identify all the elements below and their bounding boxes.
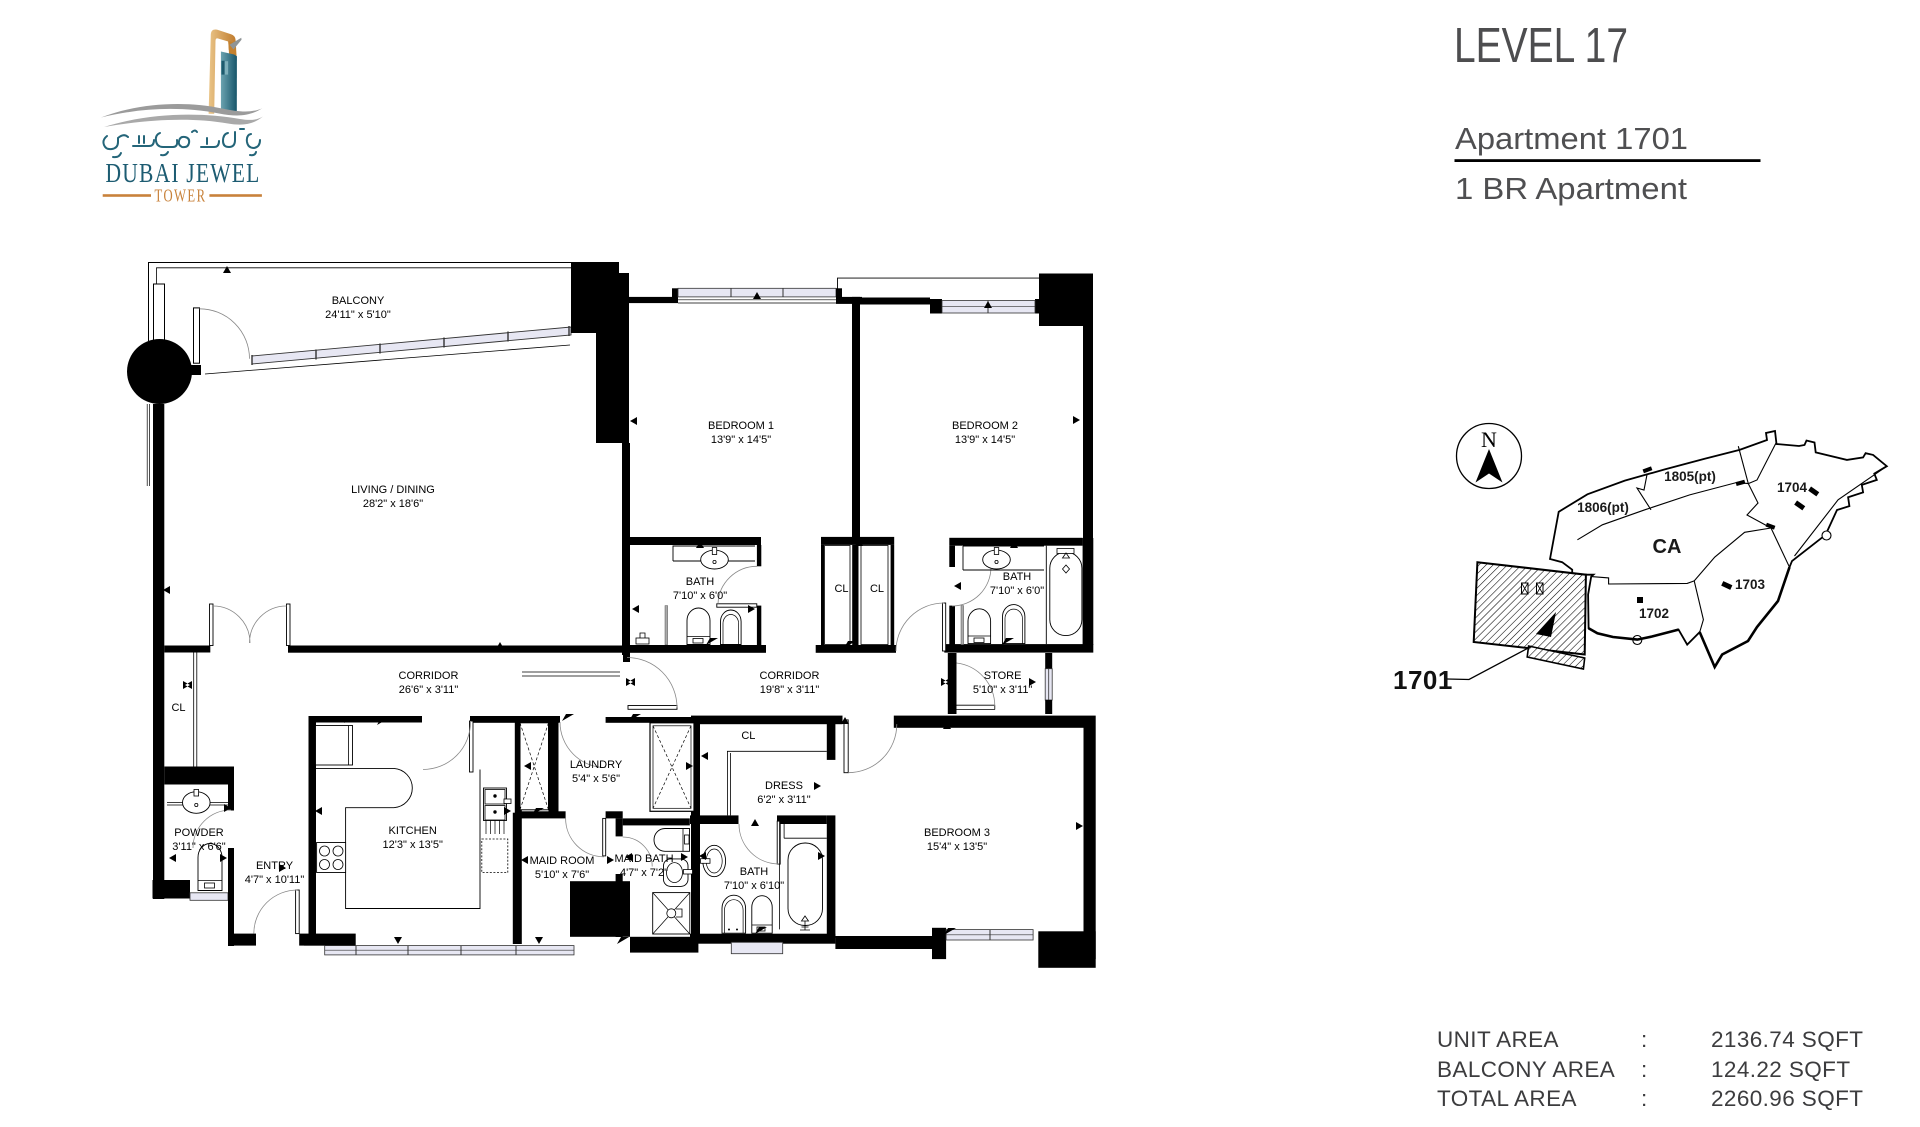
svg-text:15'4" x 13'5": 15'4" x 13'5"	[927, 841, 987, 853]
svg-text:TOTAL AREA: TOTAL AREA	[1437, 1086, 1577, 1111]
svg-text:ENTRY: ENTRY	[256, 860, 294, 872]
svg-text:DRESS: DRESS	[765, 780, 803, 792]
svg-text:UNIT AREA: UNIT AREA	[1437, 1027, 1559, 1052]
svg-text:4'7" x 7'2": 4'7" x 7'2"	[620, 867, 668, 879]
svg-text:LEVEL 17: LEVEL 17	[1454, 18, 1628, 73]
svg-text:13'9" x 14'5": 13'9" x 14'5"	[955, 434, 1015, 446]
svg-text:1704: 1704	[1777, 480, 1808, 495]
svg-text::: :	[1641, 1027, 1648, 1052]
svg-text:1805(pt): 1805(pt)	[1664, 469, 1716, 484]
svg-text:124.22 SQFT: 124.22 SQFT	[1711, 1057, 1850, 1082]
svg-text:LAUNDRY: LAUNDRY	[570, 759, 623, 771]
svg-text:7'10" x 6'0": 7'10" x 6'0"	[673, 590, 727, 602]
svg-text:DUBAI JEWEL: DUBAI JEWEL	[106, 158, 261, 188]
svg-text:CORRIDOR: CORRIDOR	[760, 670, 820, 682]
svg-text:7'10" x 6'0": 7'10" x 6'0"	[990, 585, 1044, 597]
svg-text:CL: CL	[870, 583, 884, 595]
svg-text:1806(pt): 1806(pt)	[1577, 500, 1629, 515]
svg-text:CL: CL	[171, 702, 185, 714]
svg-text:STORE: STORE	[984, 670, 1022, 682]
svg-text:KITCHEN: KITCHEN	[389, 825, 437, 837]
svg-text:24'11" x 5'10": 24'11" x 5'10"	[325, 309, 391, 321]
svg-text:1702: 1702	[1639, 606, 1669, 621]
svg-text:BEDROOM 2: BEDROOM 2	[952, 420, 1018, 432]
svg-text:6'2" x 3'11": 6'2" x 3'11"	[757, 794, 810, 806]
svg-text:19'8" x 3'11": 19'8" x 3'11"	[760, 684, 820, 696]
svg-text:5'10" x 7'6": 5'10" x 7'6"	[535, 869, 589, 881]
svg-text:2260.96 SQFT: 2260.96 SQFT	[1711, 1086, 1863, 1111]
svg-text:BATH: BATH	[1003, 571, 1032, 583]
svg-text:1701: 1701	[1393, 665, 1453, 695]
svg-text:4'7" x 10'11": 4'7" x 10'11"	[245, 874, 305, 886]
svg-text:LIVING / DINING: LIVING / DINING	[351, 484, 435, 496]
svg-text:BEDROOM 3: BEDROOM 3	[924, 827, 990, 839]
svg-text:MAID BATH: MAID BATH	[614, 853, 673, 865]
svg-text::: :	[1641, 1086, 1648, 1111]
svg-text:BATH: BATH	[686, 576, 715, 588]
svg-text:CL: CL	[834, 583, 848, 595]
svg-text:CORRIDOR: CORRIDOR	[399, 670, 459, 682]
svg-text:3'11" x 6'6": 3'11" x 6'6"	[172, 841, 225, 853]
svg-text:2136.74 SQFT: 2136.74 SQFT	[1711, 1027, 1863, 1052]
svg-text:BALCONY AREA: BALCONY AREA	[1437, 1057, 1615, 1082]
svg-text:26'6" x 3'11": 26'6" x 3'11"	[399, 684, 459, 696]
svg-text::: :	[1641, 1057, 1648, 1082]
svg-text:BEDROOM 1: BEDROOM 1	[708, 420, 774, 432]
svg-text:CA: CA	[1653, 536, 1682, 558]
svg-text:5'4" x 5'6": 5'4" x 5'6"	[572, 773, 620, 785]
svg-text:1 BR Apartment: 1 BR Apartment	[1455, 171, 1687, 206]
svg-text:Apartment 1701: Apartment 1701	[1455, 121, 1688, 156]
svg-text:N: N	[1481, 427, 1497, 452]
svg-text:5'10" x 3'11": 5'10" x 3'11"	[973, 684, 1033, 696]
svg-text:CL: CL	[741, 730, 755, 742]
svg-text:12'3" x 13'5": 12'3" x 13'5"	[383, 839, 443, 851]
svg-text:7'10" x 6'10": 7'10" x 6'10"	[724, 880, 784, 892]
svg-text:BATH: BATH	[740, 866, 769, 878]
svg-text:28'2" x 18'6": 28'2" x 18'6"	[363, 498, 423, 510]
svg-text:MAID ROOM: MAID ROOM	[530, 855, 595, 867]
svg-text:POWDER: POWDER	[174, 827, 224, 839]
svg-text:BALCONY: BALCONY	[332, 295, 385, 307]
svg-text:TOWER: TOWER	[155, 186, 207, 206]
svg-text:13'9" x 14'5": 13'9" x 14'5"	[711, 434, 771, 446]
svg-text:1703: 1703	[1735, 577, 1766, 592]
